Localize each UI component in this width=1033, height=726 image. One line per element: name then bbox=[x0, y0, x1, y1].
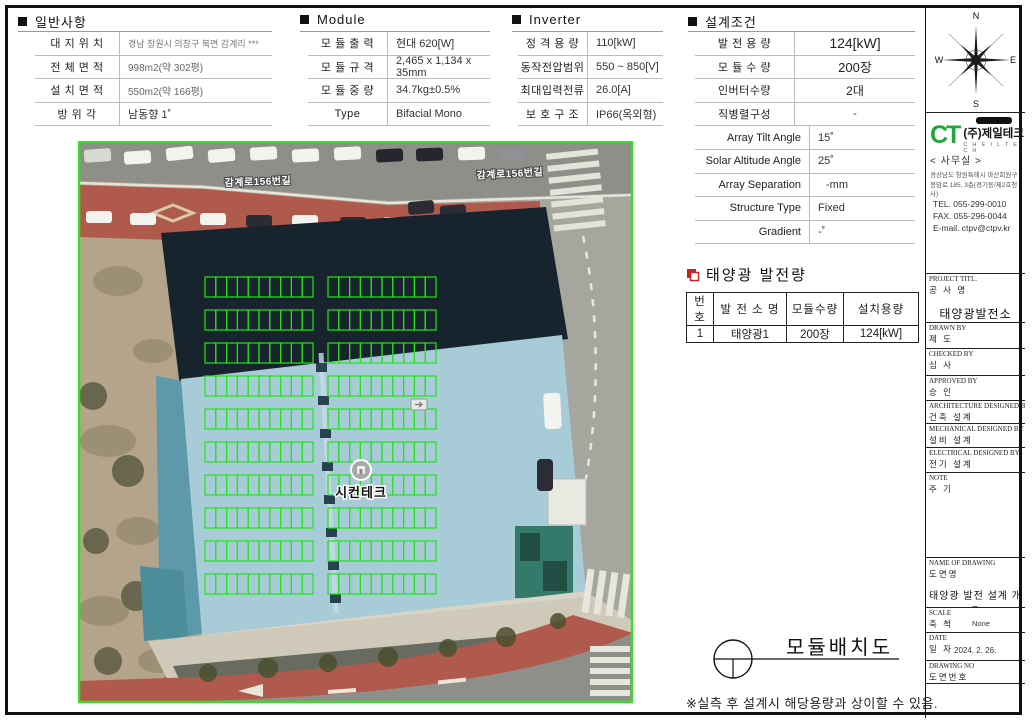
titleblock-scale: SCALE 축 척 None bbox=[926, 607, 1025, 632]
field-value: None bbox=[972, 619, 990, 628]
generation-table: 번 호 발 전 소 명 모듈수량 설치용량 1 태양광1 200장 124[kW… bbox=[686, 292, 919, 343]
row-value: 34.7kg±0.5% bbox=[388, 84, 460, 96]
field-label-en: PROJECT TITL. bbox=[926, 273, 1025, 283]
module-table: 모 듈 출 력 현대 620[W] 모 듈 규 격 2,465 x 1,134 … bbox=[308, 32, 490, 126]
field-label-en: DATE bbox=[926, 632, 1025, 642]
field-label-en: APPROVED BY bbox=[926, 375, 1025, 385]
logo-badge bbox=[976, 117, 1012, 124]
row-value: 2,465 x 1,134 x 35mm bbox=[388, 55, 490, 79]
divider bbox=[926, 683, 1025, 684]
row-value: Fixed bbox=[810, 202, 845, 214]
row-value: -˚ bbox=[810, 226, 825, 238]
row-label: 전 체 면 적 bbox=[35, 56, 120, 79]
satellite-map: 감계로156번길 감계로156번길 시컨테크 bbox=[78, 141, 633, 703]
field-label-ko: 도면번호 bbox=[926, 670, 1025, 683]
satellite-map-drawing: 감계로156번길 감계로156번길 시컨테크 bbox=[78, 141, 633, 703]
row-label: 모 듈 규 격 bbox=[308, 56, 388, 79]
compass-rose: N S W E bbox=[935, 10, 1017, 110]
row-label: Array Separation bbox=[695, 174, 810, 197]
col-header: 발 전 소 명 bbox=[714, 293, 787, 326]
titleblock-drawn-by: DRAWN BY 제 도 bbox=[926, 322, 1025, 348]
row-label: 직병렬구성 bbox=[695, 103, 795, 126]
row-value: 998m2(약 302평) bbox=[120, 59, 203, 74]
section-design-header: 설계조건 bbox=[688, 12, 757, 31]
table-row: Type Bifacial Mono bbox=[308, 103, 490, 127]
square-bullet-icon bbox=[512, 15, 521, 24]
company-fax: FAX. 055-296-0044 bbox=[933, 210, 1025, 222]
general-table: 대 지 위 치 경남 창원시 의창구 북면 감계리 *** 전 체 면 적 99… bbox=[35, 32, 272, 126]
compass-w: W bbox=[935, 55, 944, 65]
row-label: Type bbox=[308, 103, 388, 126]
row-value: 25˚ bbox=[810, 155, 834, 167]
drawing-sheet: 일반사항 대 지 위 치 경남 창원시 의창구 북면 감계리 *** 전 체 면… bbox=[0, 0, 1033, 726]
titleblock-drawing-name: NAME OF DRAWING 도면명 태양광 발전 설계 개요 bbox=[926, 557, 1025, 607]
row-label: 최대입력전류 bbox=[518, 79, 588, 102]
section-module-header: Module bbox=[300, 12, 366, 27]
office-label: < 사무실 > bbox=[930, 152, 982, 167]
row-value: 110[kW] bbox=[588, 37, 636, 49]
field-label-ko: 도면명 bbox=[926, 567, 1025, 580]
section-general-header: 일반사항 bbox=[18, 12, 87, 31]
row-label: 동작전압범위 bbox=[518, 56, 588, 79]
design-table-a: 발 전 용 량 124[kW] 모 듈 수 량 200장 인버터수량 2대 직병… bbox=[695, 32, 915, 126]
table-row: 모 듈 출 력 현대 620[W] bbox=[308, 32, 490, 56]
dark-car bbox=[537, 459, 553, 491]
generation-title: 태양광 발전량 bbox=[706, 264, 807, 285]
titleblock-architecture: ARCHITECTURE DESIGNED BY 건축 설계 bbox=[926, 400, 1025, 423]
cell: 124[kW] bbox=[844, 326, 919, 343]
company-address-2: 봉암로 185, 3층(경기동/제2호청사) bbox=[930, 181, 1024, 199]
table-row: 최대입력전류 26.0[A] bbox=[518, 79, 663, 103]
row-label: Solar Altitude Angle bbox=[695, 150, 810, 173]
row-value: 200장 bbox=[795, 57, 915, 76]
field-label-ko: 공 사 명 bbox=[926, 283, 1025, 296]
field-label-en: NAME OF DRAWING bbox=[926, 557, 1025, 567]
row-value: - bbox=[795, 108, 915, 120]
design-table-b: Array Tilt Angle 15˚ Solar Altitude Angl… bbox=[695, 126, 915, 244]
col-header: 설치용량 bbox=[844, 293, 919, 326]
section-title: 일반사항 bbox=[35, 12, 87, 31]
cell: 1 bbox=[687, 326, 714, 343]
row-label: 방 위 각 bbox=[35, 103, 120, 126]
field-label-en: ELECTRICAL DESIGNED BY bbox=[926, 447, 1025, 457]
field-label-en: MECHANICAL DESIGNED BY bbox=[926, 423, 1025, 433]
row-label: 정 격 용 량 bbox=[518, 32, 588, 55]
field-label-ko: 건축 설계 bbox=[926, 410, 1025, 423]
field-label-ko: 주 기 bbox=[926, 482, 1025, 495]
row-label: Structure Type bbox=[695, 197, 810, 220]
titleblock-project: PROJECT TITL. 공 사 명 태양광발전소 bbox=[926, 273, 1025, 322]
titleblock-note: NOTE 주 기 bbox=[926, 472, 1025, 557]
row-label: 발 전 용 량 bbox=[695, 32, 795, 55]
table-row: 전 체 면 적 998m2(약 302평) bbox=[35, 56, 272, 80]
compass-n: N bbox=[973, 11, 980, 21]
field-label-ko: 승 인 bbox=[926, 385, 1025, 398]
row-label: 모 듈 출 력 bbox=[308, 32, 388, 55]
section-inverter-header: Inverter bbox=[512, 12, 581, 27]
section-title: 설계조건 bbox=[705, 12, 757, 31]
square-bullet-icon bbox=[300, 15, 309, 24]
red-layers-icon bbox=[686, 268, 700, 282]
row-value: Bifacial Mono bbox=[388, 108, 462, 120]
row-value: 남동향 1˚ bbox=[120, 106, 171, 122]
section-title: Inverter bbox=[529, 12, 581, 27]
white-van bbox=[543, 393, 562, 430]
field-label-en: NOTE bbox=[926, 472, 1025, 482]
field-label-en: DRAWN BY bbox=[926, 322, 1025, 332]
table-row: Structure Type Fixed bbox=[695, 197, 915, 221]
row-value: -mm bbox=[810, 179, 848, 191]
square-bullet-icon bbox=[18, 17, 27, 26]
annex-structure bbox=[140, 566, 188, 641]
col-header: 번 호 bbox=[687, 293, 714, 326]
row-value: 124[kW] bbox=[795, 35, 915, 51]
row-label: Array Tilt Angle bbox=[695, 126, 810, 149]
poi-arrow-icon bbox=[411, 399, 427, 410]
row-label: 설 치 면 적 bbox=[35, 79, 120, 102]
table-header-row: 번 호 발 전 소 명 모듈수량 설치용량 bbox=[687, 293, 919, 326]
white-shed bbox=[548, 479, 586, 525]
footnote: ※실측 후 설계시 해당용량과 상이할 수 있음. bbox=[686, 693, 938, 712]
table-row: Array Separation -mm bbox=[695, 174, 915, 198]
row-label: 모 듈 수 량 bbox=[695, 56, 795, 79]
compass-s: S bbox=[973, 99, 979, 109]
field-label-ko: 전기 설계 bbox=[926, 457, 1025, 470]
divider bbox=[926, 112, 1025, 113]
row-value: 2대 bbox=[795, 82, 915, 99]
table-row: 동작전압범위 550 ~ 850[V] bbox=[518, 56, 663, 80]
row-label: 모 듈 중 량 bbox=[308, 79, 388, 102]
titleblock-drawing-no: DRAWING NO 도면번호 bbox=[926, 660, 1025, 683]
field-value: 2024. 2. 26. bbox=[954, 646, 996, 655]
marker-label: 시컨테크 bbox=[335, 485, 387, 500]
row-label: 인버터수량 bbox=[695, 79, 795, 102]
row-value: 550m2(약 166평) bbox=[120, 83, 203, 98]
titleblock-approved-by: APPROVED BY 승 인 bbox=[926, 375, 1025, 400]
table-row: 모 듈 수 량 200장 bbox=[695, 56, 915, 80]
row-value: IP66(옥외형) bbox=[588, 106, 656, 122]
table-row: 발 전 용 량 124[kW] bbox=[695, 32, 915, 56]
titleblock-date: DATE 일 자 2024. 2. 26. bbox=[926, 632, 1025, 660]
table-row: 인버터수량 2대 bbox=[695, 79, 915, 103]
field-label-ko: 심 사 bbox=[926, 358, 1025, 371]
field-value: 태양광 발전 설계 개요 bbox=[926, 587, 1025, 607]
field-label-en: ARCHITECTURE DESIGNED BY bbox=[926, 400, 1025, 410]
company-name: (주)제일테크 bbox=[963, 125, 1024, 141]
table-row: Gradient -˚ bbox=[695, 221, 915, 245]
table-row: 대 지 위 치 경남 창원시 의창구 북면 감계리 *** bbox=[35, 32, 272, 56]
table-row: 설 치 면 적 550m2(약 166평) bbox=[35, 79, 272, 103]
generation-header: 태양광 발전량 bbox=[686, 264, 807, 285]
titleblock-electrical: ELECTRICAL DESIGNED BY 전기 설계 bbox=[926, 447, 1025, 472]
company-email: E-mail. ctpv@ctpv.kr bbox=[933, 222, 1025, 234]
drawing-title: 모듈배치도 bbox=[772, 631, 907, 660]
table-row: 보 호 구 조 IP66(옥외형) bbox=[518, 103, 663, 127]
table-row: 1 태양광1 200장 124[kW] bbox=[687, 326, 919, 343]
col-header: 모듈수량 bbox=[787, 293, 844, 326]
row-value: 현대 620[W] bbox=[388, 35, 454, 51]
row-label: 대 지 위 치 bbox=[35, 32, 120, 55]
logo-ct-mark: CT bbox=[930, 123, 959, 148]
table-row: 모 듈 규 격 2,465 x 1,134 x 35mm bbox=[308, 56, 490, 80]
row-label: Gradient bbox=[695, 221, 810, 244]
titleblock-checked-by: CHECKED BY 심 사 bbox=[926, 348, 1025, 375]
company-tel: TEL. 055-299-0010 bbox=[933, 198, 1025, 210]
section-title: Module bbox=[317, 12, 366, 27]
table-row: Solar Altitude Angle 25˚ bbox=[695, 150, 915, 174]
table-row: 정 격 용 량 110[kW] bbox=[518, 32, 663, 56]
field-label-ko: 설비 설계 bbox=[926, 433, 1025, 446]
company-address-1: 경상남도 창원특례시 마산회원구 bbox=[930, 171, 1024, 180]
row-value: 경남 창원시 의창구 북면 감계리 *** bbox=[120, 37, 259, 50]
titleblock-mechanical: MECHANICAL DESIGNED BY 설비 설계 bbox=[926, 423, 1025, 447]
field-label-en: SCALE bbox=[926, 607, 1025, 617]
square-bullet-icon bbox=[688, 17, 697, 26]
cell: 태양광1 bbox=[714, 326, 787, 343]
table-row: 방 위 각 남동향 1˚ bbox=[35, 103, 272, 127]
cell: 200장 bbox=[787, 326, 844, 343]
compass-e: E bbox=[1010, 55, 1016, 65]
company-logo: CT (주)제일테크 C H E I L T E C H bbox=[930, 117, 1024, 154]
row-value: 550 ~ 850[V] bbox=[588, 61, 659, 73]
row-value: 15˚ bbox=[810, 132, 834, 144]
inverter-table: 정 격 용 량 110[kW] 동작전압범위 550 ~ 850[V] 최대입력… bbox=[518, 32, 663, 126]
map-marker-icon bbox=[351, 460, 371, 480]
row-value: 26.0[A] bbox=[588, 84, 631, 96]
field-label-en: CHECKED BY bbox=[926, 348, 1025, 358]
table-row: 직병렬구성 - bbox=[695, 103, 915, 127]
table-row: 모 듈 중 량 34.7kg±0.5% bbox=[308, 79, 490, 103]
row-label: 보 호 구 조 bbox=[518, 103, 588, 126]
field-label-en: DRAWING NO bbox=[926, 660, 1025, 670]
field-value: 태양광발전소 bbox=[926, 305, 1025, 322]
table-row: Array Tilt Angle 15˚ bbox=[695, 126, 915, 150]
field-label-ko: 제 도 bbox=[926, 332, 1025, 345]
